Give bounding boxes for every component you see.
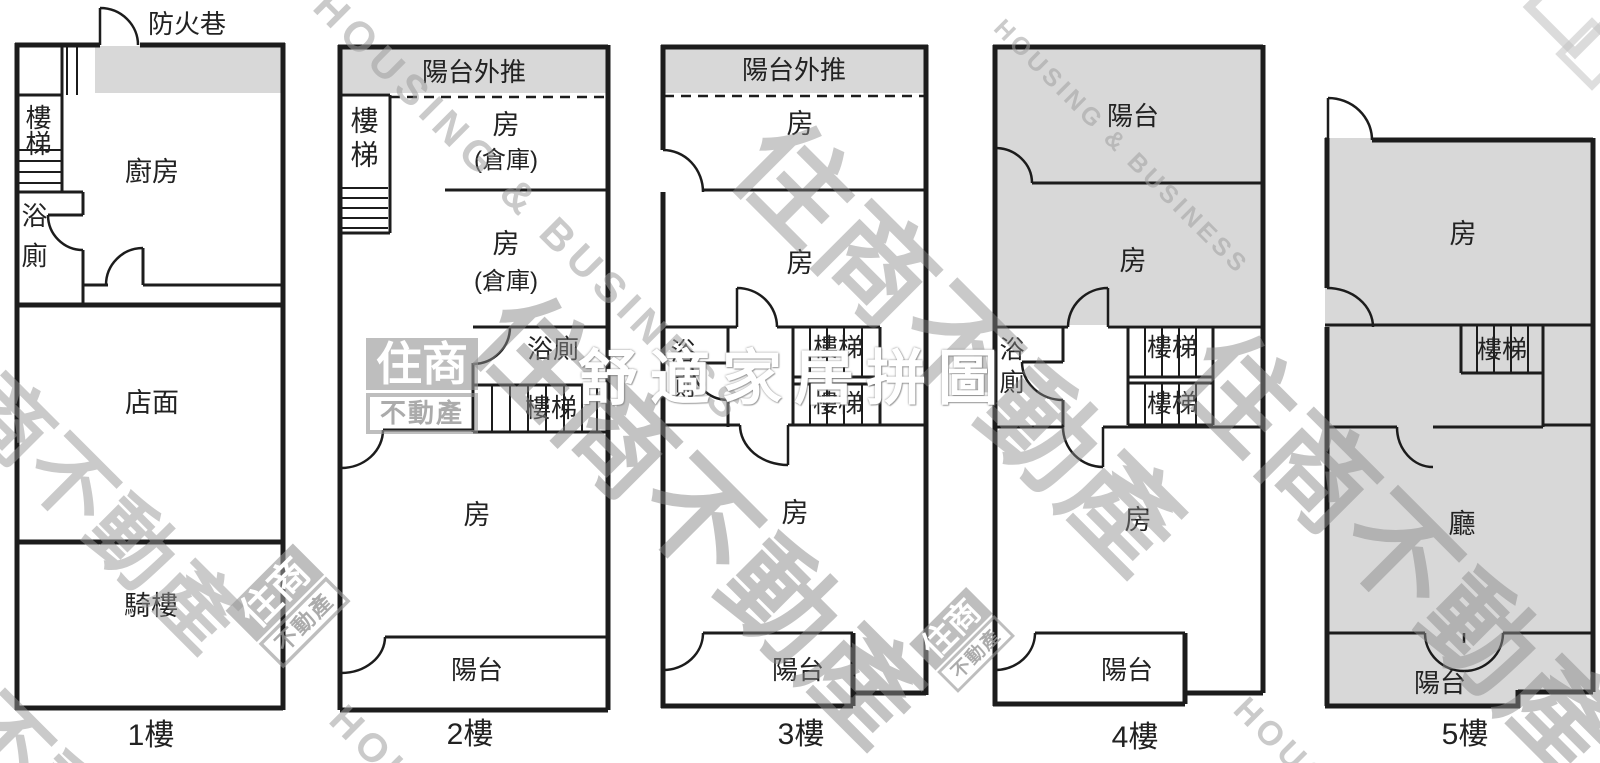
label-stairs-5f: 樓梯 [1477, 336, 1527, 364]
label-bath-4f: 浴廁 [996, 336, 1025, 402]
shaded-strip-1f [95, 46, 283, 93]
label-stairs-up-3f: 樓梯 [813, 334, 863, 362]
floor-label-3f: 3樓 [778, 718, 825, 751]
floorplan-sheet: 防火巷 樓梯 浴廁 廚房 店面 騎樓 1樓 陽台外推 樓梯 房 (倉庫) 房 (… [0, 0, 1600, 763]
floor-plan-3f: 陽台外推 房 房 浴廁 樓梯 樓梯 房 陽台 3樓 [661, 45, 928, 751]
label-stairs-1f: 樓梯 [22, 104, 52, 156]
label-balcony-3f: 陽台 [772, 655, 824, 685]
floor-plan-5f: 房 樓梯 廳 陽台 5樓 [1325, 98, 1595, 751]
label-stairs-upper-2f: 樓梯 [348, 106, 379, 174]
label-room-rear-3f: 房 [782, 498, 809, 528]
label-room1-note-2f: (倉庫) [474, 147, 538, 174]
inner-walls-2f [338, 95, 608, 637]
floor-plan-2f: 陽台外推 樓梯 房 (倉庫) 房 (倉庫) 浴廁 樓梯 房 陽台 2樓 [338, 45, 608, 751]
label-stairs-up-4f: 樓梯 [1147, 334, 1197, 362]
floor-label-5f: 5樓 [1442, 718, 1489, 751]
label-stairs-down-3f: 樓梯 [813, 390, 863, 418]
label-room2-2f: 房 [493, 229, 520, 259]
label-bath-2f: 浴廁 [527, 334, 579, 364]
floor-label-1f: 1樓 [128, 719, 175, 752]
label-room2-note-2f: (倉庫) [474, 268, 538, 295]
label-stairs-lower-2f: 樓梯 [525, 393, 577, 423]
door-arcs-3f [663, 150, 788, 670]
label-balcony-5f: 陽台 [1414, 668, 1466, 698]
floor-label-2f: 2樓 [447, 718, 494, 751]
label-room-front-4f: 房 [1120, 246, 1147, 276]
label-stairs-down-4f: 樓梯 [1147, 390, 1197, 418]
label-fire-lane: 防火巷 [148, 9, 226, 39]
floor-plan-1f: 防火巷 樓梯 浴廁 廚房 店面 騎樓 1樓 [15, 8, 285, 752]
shaded-rooms-4f [996, 47, 1261, 325]
floor-plan-4f: 陽台 房 浴廁 樓梯 樓梯 房 陽台 4樓 [993, 45, 1263, 754]
label-balcony-2f: 陽台 [451, 655, 503, 685]
label-kitchen-1f: 廚房 [125, 157, 179, 187]
label-room-5f: 房 [1450, 219, 1477, 249]
label-arcade-1f: 騎樓 [124, 591, 178, 621]
label-store-1f: 店面 [125, 388, 179, 418]
label-room-middle-3f: 房 [787, 248, 814, 278]
label-room1-2f: 房 [493, 110, 520, 140]
label-balcony-ext-2f: 陽台外推 [422, 57, 526, 87]
label-room-rear-4f: 房 [1125, 505, 1152, 535]
label-balcony-4f: 陽台 [1101, 655, 1153, 685]
label-bath-1f: 浴廁 [18, 202, 48, 282]
label-room-front-3f: 房 [787, 109, 814, 139]
floor-label-4f: 4樓 [1112, 721, 1159, 754]
label-room-2f: 房 [464, 500, 491, 530]
label-balcony-front-4f: 陽台 [1107, 101, 1159, 131]
floorplan-drawing: 防火巷 樓梯 浴廁 廚房 店面 騎樓 1樓 陽台外推 樓梯 房 (倉庫) 房 (… [0, 0, 1600, 763]
label-bath-3f: 浴廁 [667, 338, 696, 408]
label-living-5f: 廳 [1449, 509, 1476, 539]
label-balcony-ext-3f: 陽台外推 [742, 55, 846, 85]
